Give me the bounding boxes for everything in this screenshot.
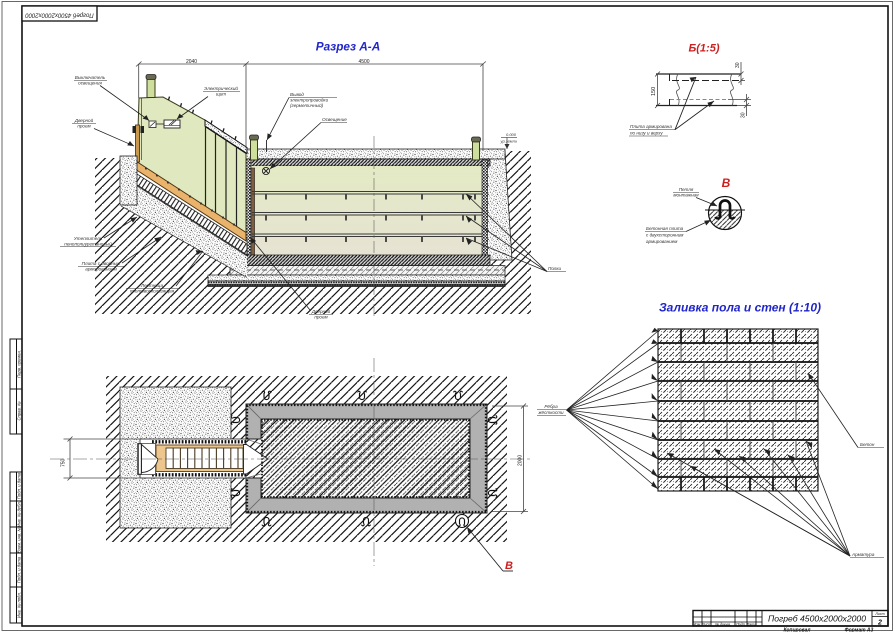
svg-text:150: 150 xyxy=(651,87,657,96)
svg-text:Инв. № дубл.: Инв. № дубл. xyxy=(17,501,22,527)
svg-text:Погреб 4500х2000х2000: Погреб 4500х2000х2000 xyxy=(768,614,866,624)
svg-text:Арматура: Арматура xyxy=(851,552,875,557)
svg-text:Копировал: Копировал xyxy=(783,628,811,632)
svg-text:750: 750 xyxy=(61,458,67,467)
svg-text:Справ. №: Справ. № xyxy=(17,401,22,420)
svg-text:№ докум.: № докум. xyxy=(715,622,731,626)
svg-text:Заливка пола и стен (1:10): Заливка пола и стен (1:10) xyxy=(659,301,821,315)
svg-text:Погреб 4500х2000х2000: Погреб 4500х2000х2000 xyxy=(25,12,94,18)
svg-text:В: В xyxy=(505,560,513,572)
svg-text:Инв. № подл.: Инв. № подл. xyxy=(17,592,22,618)
svg-text:Взам. инв. №: Взам. инв. № xyxy=(17,527,22,553)
svg-text:Лист: Лист xyxy=(701,622,711,626)
svg-text:Подп.: Подп. xyxy=(736,622,746,626)
svg-text:Двернойпроем: Двернойпроем xyxy=(311,308,331,320)
svg-text:Б(1:5): Б(1:5) xyxy=(688,43,719,55)
svg-text:0.000: 0.000 xyxy=(506,132,517,137)
svg-text:Изм.: Изм. xyxy=(694,622,702,626)
svg-text:Формат А3: Формат А3 xyxy=(845,628,874,632)
svg-text:2000: 2000 xyxy=(518,455,524,466)
svg-text:2: 2 xyxy=(877,620,882,627)
svg-text:Разрез А-А: Разрез А-А xyxy=(316,40,380,54)
svg-text:Бетон: Бетон xyxy=(860,442,875,447)
svg-text:Дата: Дата xyxy=(746,622,756,626)
svg-text:Лист: Лист xyxy=(874,612,884,616)
svg-text:4500: 4500 xyxy=(358,59,369,65)
svg-text:2040: 2040 xyxy=(186,59,197,65)
svg-text:30: 30 xyxy=(735,62,741,68)
svg-text:Освещение: Освещение xyxy=(322,117,347,122)
svg-text:Плита с двойнымармированием: Плита с двойнымармированием xyxy=(82,260,122,272)
svg-text:30: 30 xyxy=(741,112,747,118)
svg-text:Перв. примен.: Перв. примен. xyxy=(17,350,22,378)
svg-text:Подп. и дата: Подп. и дата xyxy=(17,556,22,583)
svg-text:Двернойпроем: Двернойпроем xyxy=(74,117,94,129)
svg-text:В: В xyxy=(722,176,731,190)
svg-text:Полки: Полки xyxy=(548,266,562,271)
svg-text:Подп. и дата: Подп. и дата xyxy=(17,472,22,499)
svg-text:ур.земли: ур.земли xyxy=(499,139,517,144)
